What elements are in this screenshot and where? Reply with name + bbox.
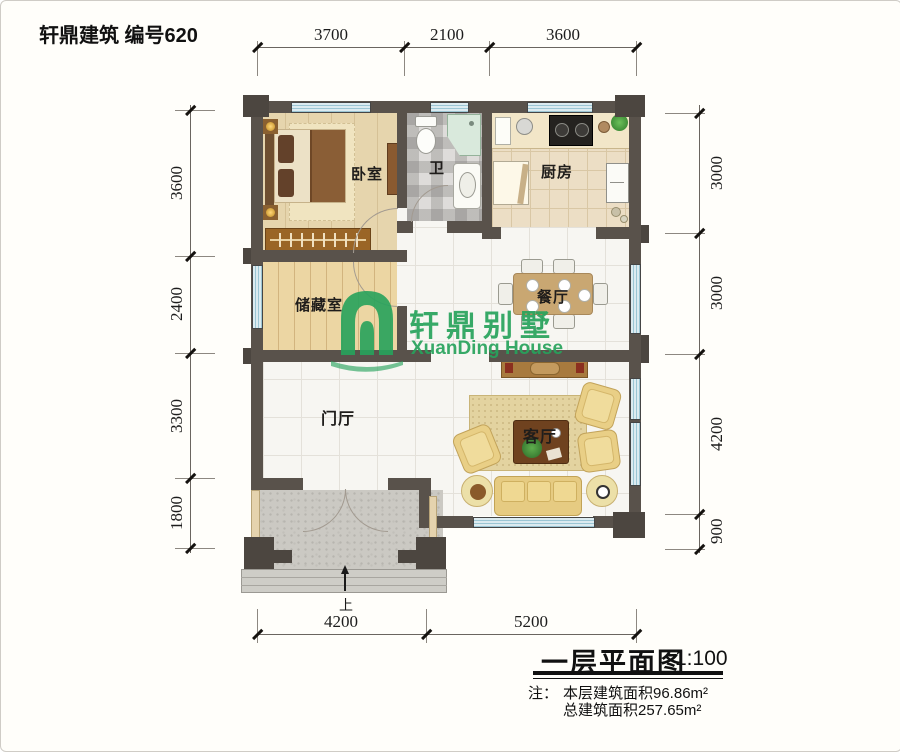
label-bedroom: 卧室: [351, 163, 383, 184]
porch-wall-tab-right: [398, 550, 416, 563]
sofa-cushion: [553, 481, 577, 502]
dim-ext: [636, 609, 637, 643]
dim-left-3: 3300: [167, 376, 187, 456]
up-arrow-shaft: [344, 573, 346, 591]
fridge-handle: [610, 182, 624, 183]
dim-left-2: 2400: [167, 264, 187, 344]
hangers: [270, 233, 366, 247]
dim-bottom-1: 4200: [301, 612, 381, 632]
dim-top-2: 2100: [407, 25, 487, 45]
cutting-board: [495, 117, 511, 145]
bath-sink: [453, 163, 481, 209]
window-storage: [252, 265, 263, 329]
decor-plate: [596, 485, 610, 499]
shower-drain: [469, 121, 474, 126]
dim-left-4: 1800: [167, 473, 187, 553]
pilaster-left-1: [243, 248, 251, 264]
toilet-bowl: [416, 128, 436, 154]
magazine: [546, 447, 562, 460]
dim-left-1: 3600: [167, 143, 187, 223]
stove: [549, 115, 593, 146]
porch-column-left: [244, 537, 274, 569]
pilaster-right-1: [641, 225, 649, 243]
porch-column-right: [416, 537, 446, 569]
sofa: [494, 476, 582, 516]
vase: [576, 363, 584, 373]
note-total-area: 总建筑面积257.65m²: [563, 699, 701, 720]
floor-plan-sheet: 轩鼎建筑 编号620: [0, 0, 900, 752]
nightstand: [263, 119, 278, 134]
food-tray: [470, 484, 486, 500]
pillow: [278, 169, 294, 197]
kitchen-cart: [493, 161, 529, 205]
armchair: [576, 428, 621, 473]
dim-ext: [175, 353, 215, 354]
wall-bath-kitchen: [482, 113, 492, 233]
sofa-cushion: [501, 481, 525, 502]
wall-hall-bottom-left: [251, 478, 303, 490]
title-underline-thin: [533, 678, 723, 679]
sink-basin: [459, 172, 476, 198]
plate: [578, 289, 591, 302]
tray: [530, 362, 560, 375]
dining-chair: [593, 283, 608, 305]
dim-top-3: 3600: [523, 25, 603, 45]
bed-blanket: [310, 130, 345, 202]
wall-bedroom-bath: [397, 113, 407, 208]
pillow: [278, 135, 294, 163]
window-dining: [630, 264, 641, 334]
window-kitchen: [527, 102, 593, 113]
dim-ext: [175, 110, 215, 111]
dim-top-1: 3700: [291, 25, 371, 45]
pillar-top-right: [615, 95, 645, 117]
pilaster-left-2: [243, 348, 251, 364]
dim-line-top: [257, 47, 637, 48]
vase: [505, 363, 513, 373]
burner: [555, 123, 569, 137]
lamp: [266, 122, 275, 131]
sofa-cushion: [527, 481, 551, 502]
window-living-b: [630, 422, 641, 486]
nightstand: [263, 205, 278, 220]
dim-line-right: [699, 105, 700, 553]
window-living-a: [630, 378, 641, 420]
window-living-south: [473, 517, 595, 528]
wall-kitchen-bottom-left: [482, 227, 501, 239]
dim-ext: [175, 256, 215, 257]
lamp: [266, 208, 275, 217]
porch-sidewall-right: [429, 496, 437, 540]
floor-bowl: [620, 215, 628, 223]
wall-kitchen-bottom-right: [596, 227, 641, 239]
dining-chair: [553, 259, 575, 274]
note-prefix: 注：: [528, 682, 558, 703]
label-kitchen: 厨房: [541, 161, 573, 182]
wall-living-bottom-left: [419, 516, 473, 528]
dim-right-1: 3000: [707, 133, 727, 213]
dim-right-2: 3000: [707, 253, 727, 333]
board: [517, 164, 529, 204]
sheet-title: 轩鼎建筑 编号620: [39, 19, 198, 48]
dim-line-left: [190, 105, 191, 553]
dim-ext: [426, 609, 427, 643]
fridge: [606, 163, 629, 203]
pilaster-right-2: [641, 335, 649, 363]
logo-en-text: XuanDing House: [411, 338, 563, 360]
dim-right-4: 900: [707, 491, 727, 571]
dim-line-bottom: [257, 634, 637, 635]
floor-bowl: [611, 207, 621, 217]
title-underline-thick: [533, 671, 723, 675]
window-bath: [430, 102, 469, 113]
logo-house-icon: [327, 281, 407, 373]
dim-ext: [257, 609, 258, 643]
bowl: [598, 121, 610, 133]
label-living: 客厅: [523, 423, 557, 447]
burner: [575, 123, 589, 137]
toilet-tank: [415, 116, 437, 127]
side-table: [461, 475, 493, 507]
porch-sidewall-left: [251, 490, 260, 540]
side-table: [586, 475, 618, 507]
plan-scale: 1:100: [675, 647, 728, 671]
window-bedroom: [291, 102, 371, 113]
up-arrow-head: [341, 565, 349, 574]
bed-headboard: [265, 127, 274, 205]
kitchen-sink: [516, 118, 533, 135]
label-bath: 卫: [429, 157, 445, 178]
dining-chair: [521, 259, 543, 274]
wall-bath-bottom-left: [397, 221, 413, 233]
pillar-top-left: [243, 95, 269, 117]
porch-wall-tab-left: [274, 550, 292, 563]
dim-bottom-2: 5200: [491, 612, 571, 632]
pillar-bottom-right: [613, 512, 645, 538]
dim-right-3: 4200: [707, 394, 727, 474]
label-hall: 门厅: [321, 405, 355, 429]
